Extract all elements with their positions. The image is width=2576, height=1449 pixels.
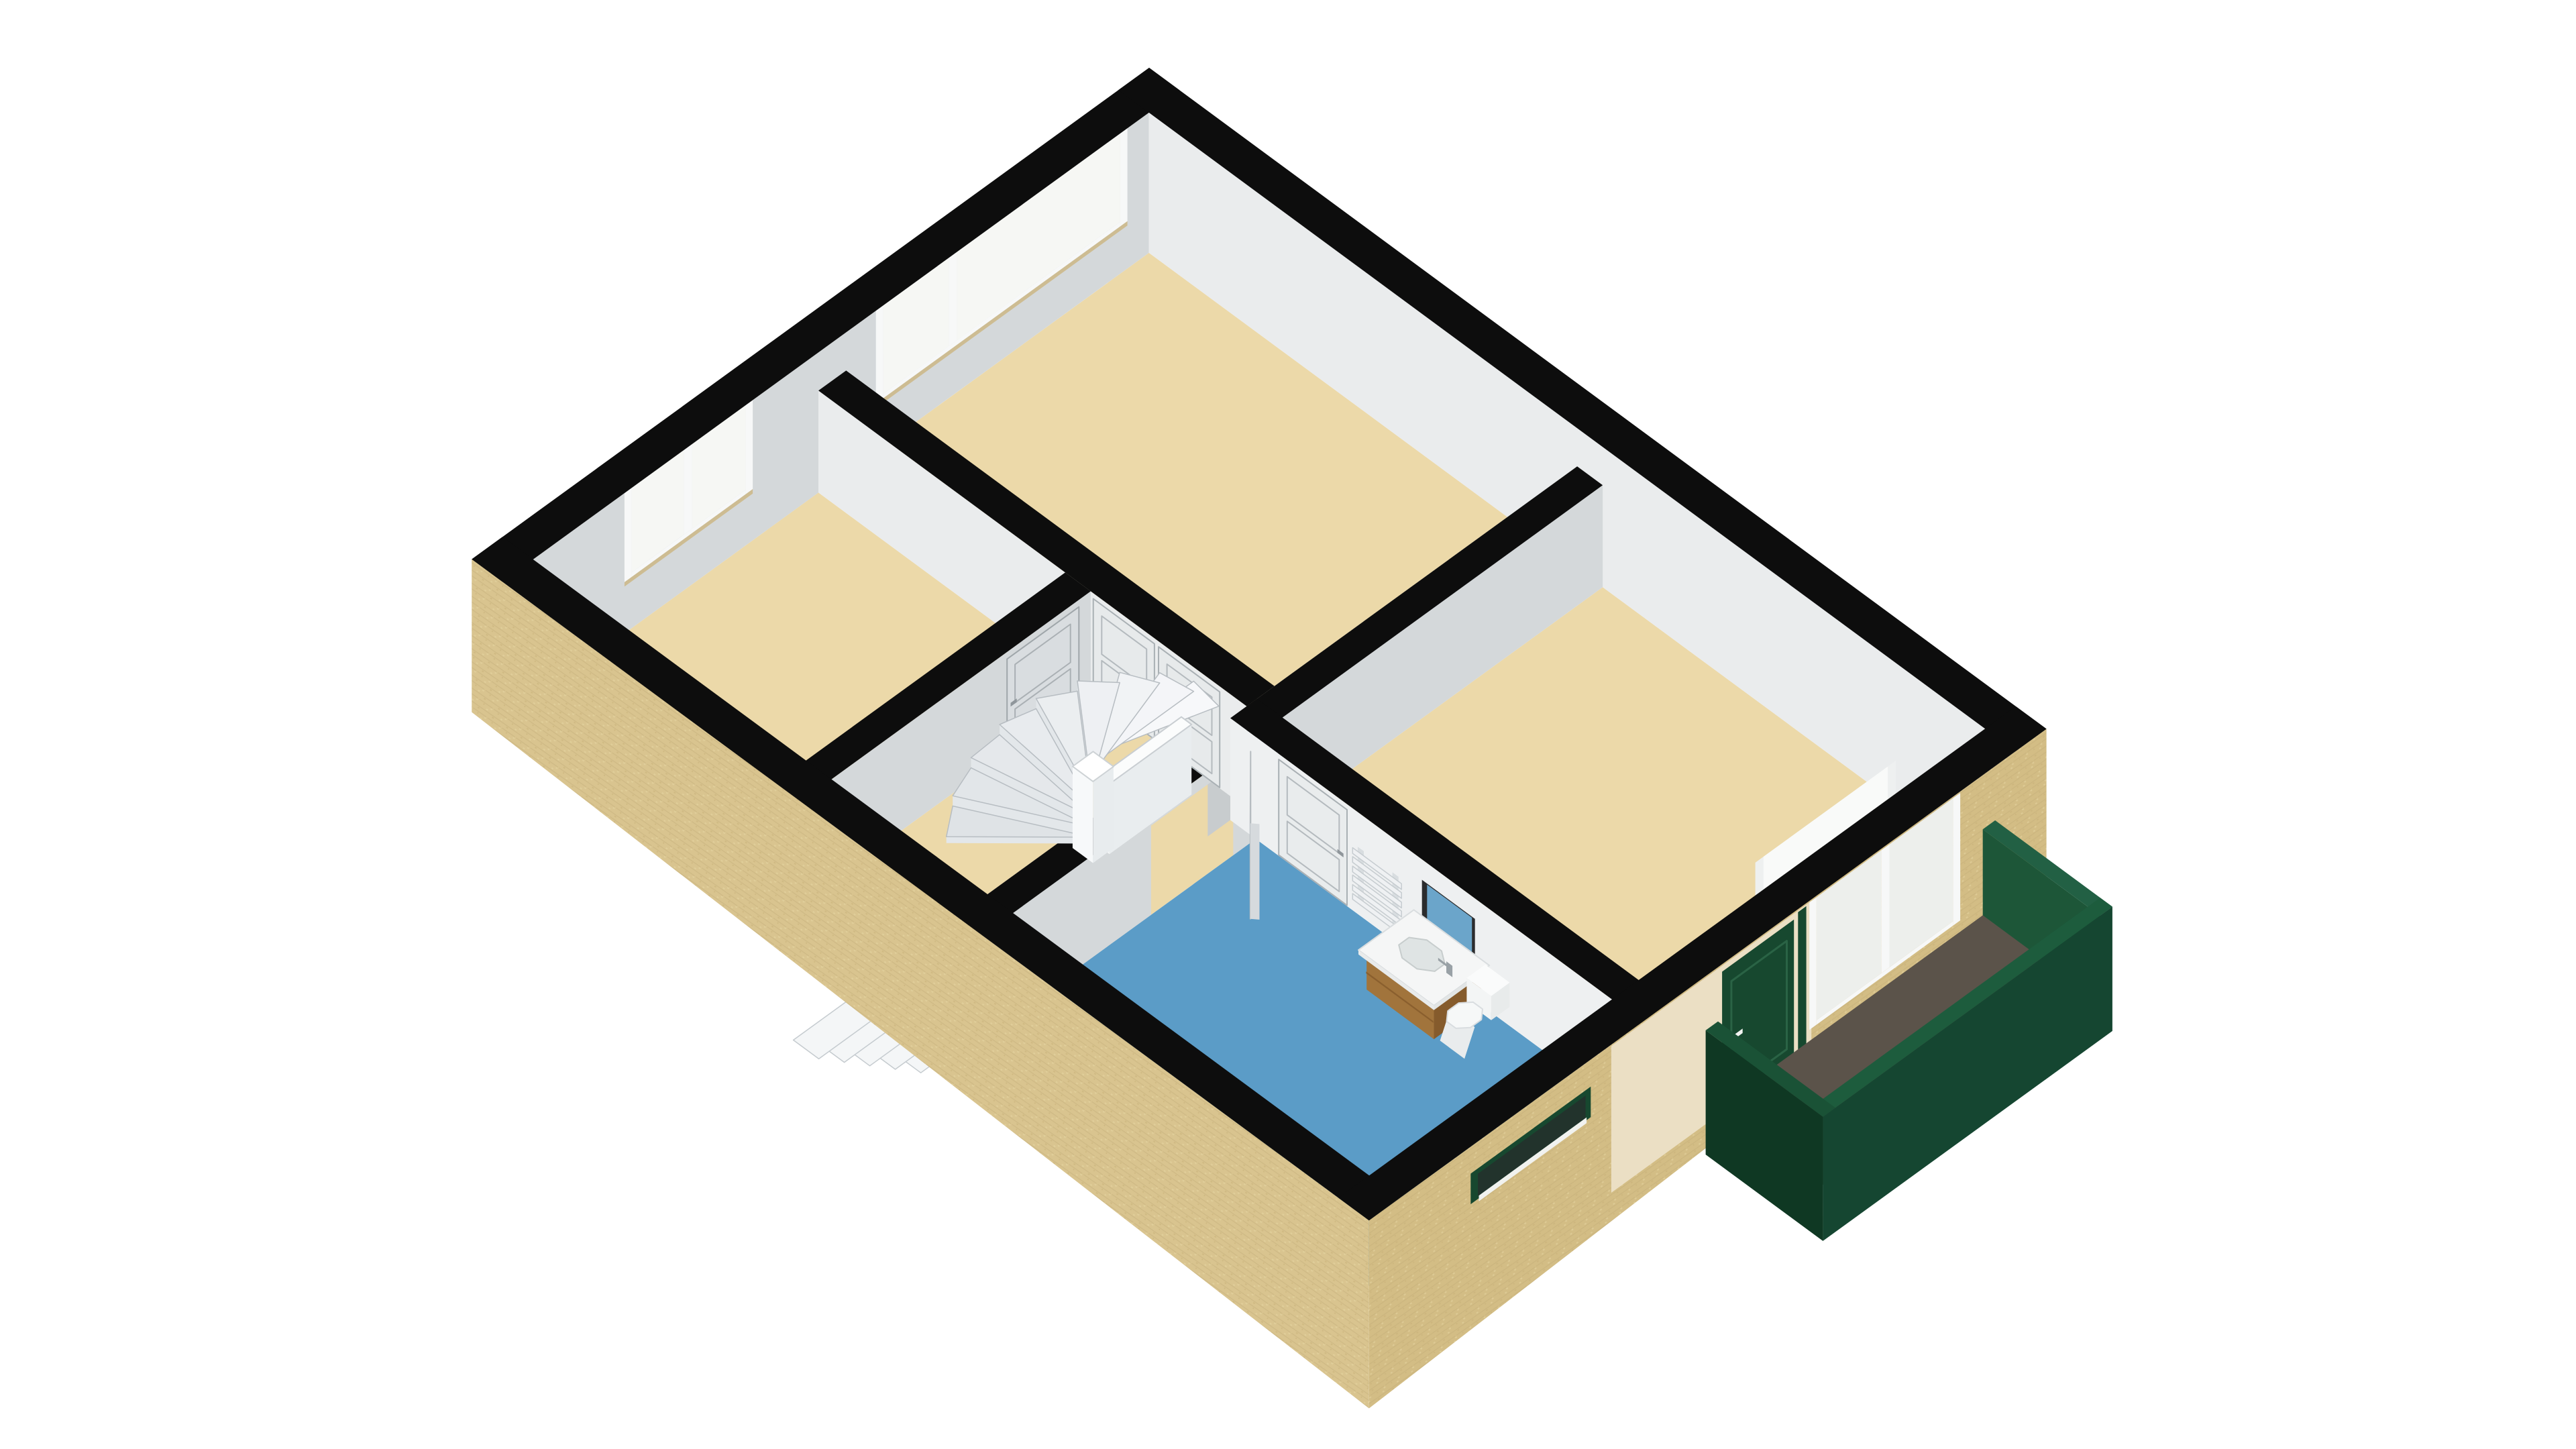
window-bedroom-2-exterior-mullion — [1881, 845, 1889, 973]
window-bedroom-3-mullion — [684, 443, 692, 535]
window-bedroom-3-jamb — [625, 486, 632, 582]
stair-newel-face-sw — [1073, 767, 1093, 863]
floorplan-3d-render — [0, 0, 2576, 1449]
window-bedroom-1-mullion — [949, 250, 957, 346]
window-bedroom-2-exterior-jamb — [1809, 898, 1817, 1030]
window-bedroom-1-jamb — [876, 304, 883, 403]
stair-newel-face-se — [1093, 767, 1114, 863]
window-bedroom-2-exterior-jamb — [1953, 793, 1960, 926]
se-facade-green-strip — [1798, 906, 1806, 1056]
winder-staircase-riser — [947, 837, 1091, 843]
page — [0, 0, 2576, 1449]
window-bedroom-1-jamb — [1120, 127, 1128, 226]
bathroom-door-open-edge — [1250, 823, 1260, 920]
window-bedroom-3-jamb — [745, 398, 753, 494]
